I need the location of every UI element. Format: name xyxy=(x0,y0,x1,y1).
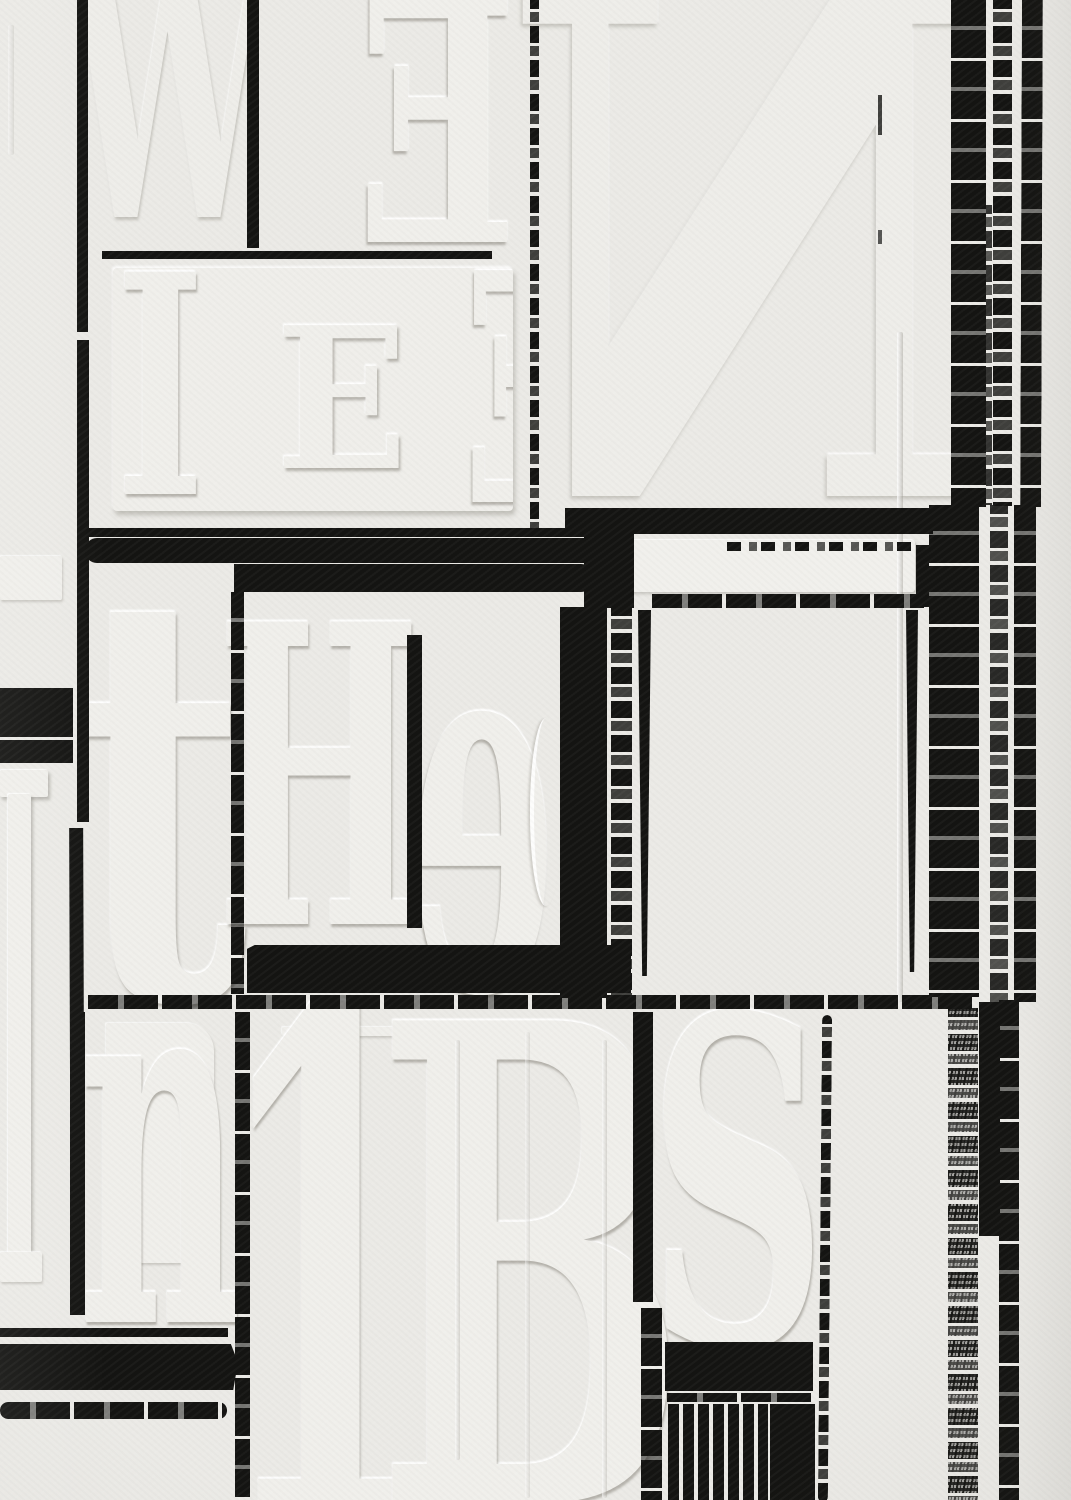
ink-bar-bottom-thick xyxy=(0,1344,238,1390)
ink-stripe-charcoal xyxy=(948,1008,978,1500)
ink-rule-junction-block xyxy=(584,532,634,608)
ink-rule-left-bar-b xyxy=(0,740,73,763)
ink-rule-vertical-bottom-mid xyxy=(235,1012,250,1498)
ink-rule-comb-rail xyxy=(667,1393,813,1402)
ink-rule-bottom-thin xyxy=(0,1328,228,1337)
ink-rule-right-column-rough xyxy=(993,0,1012,506)
ink-rule-vertical-mid xyxy=(231,592,244,994)
ink-rule-right-rough-mid xyxy=(990,505,1008,1002)
ink-rule-vertical-s-left-a xyxy=(633,1012,653,1302)
embossed-letter-s: S xyxy=(666,1014,808,1358)
embossed-partial-letter-stem xyxy=(8,794,31,1262)
emboss-ridge xyxy=(525,1032,530,1498)
ink-rule-horizontal-top xyxy=(102,251,492,259)
ink-rule-vertical-left-b xyxy=(77,340,89,822)
ink-rule-window-right xyxy=(929,505,979,997)
letterpress-print-photo: W E N I E E t H e n 1 B S xyxy=(0,0,1071,1500)
ink-fleck xyxy=(878,95,882,135)
emboss-ridge xyxy=(8,25,14,155)
ink-rule-bottom-rough xyxy=(0,1402,227,1419)
ink-rule-horizontal-mid-thick-b xyxy=(234,564,593,592)
ink-rule-window-left xyxy=(560,607,607,998)
ink-rule-right-outer-bottom xyxy=(999,1000,1019,1500)
ink-rule-horizontal-mid-thin xyxy=(85,528,585,537)
ink-rule-vertical-top xyxy=(247,0,259,248)
ink-comb-teeth xyxy=(668,1404,768,1500)
ink-rule-window-shelf xyxy=(652,594,924,608)
embossed-letter-n-large-mirrored: N xyxy=(542,0,944,510)
embossed-band-left xyxy=(0,556,62,600)
ink-rule-window-dashes xyxy=(727,542,918,551)
ink-rule-vertical-center-broken xyxy=(530,0,539,534)
ink-rule-right-thin xyxy=(986,205,992,505)
ink-fleck xyxy=(878,230,882,244)
ink-rule-vertical-bottom-left xyxy=(70,1012,85,1315)
embossed-letter-b: B xyxy=(398,1026,666,1500)
ink-block-bottom xyxy=(665,1342,813,1391)
ink-rule-left-bar-a xyxy=(0,688,73,737)
ink-rule-horizontal-mid-thick-a xyxy=(85,538,584,563)
ink-rule-window-top xyxy=(565,508,933,534)
embossed-partial-letter-bar xyxy=(0,770,48,797)
ink-rule-taper-right xyxy=(906,610,918,972)
embossed-letter-e-small: E xyxy=(278,326,406,474)
embossed-letter-e-partial-mirrored: E xyxy=(425,272,513,508)
emboss-ridge xyxy=(897,332,903,1002)
ink-rule-vertical-between-h-e xyxy=(407,635,422,928)
emboss-arc xyxy=(530,718,562,906)
emboss-ridge xyxy=(602,1040,607,1498)
embossed-letter-w: W xyxy=(75,0,260,240)
embossed-letter-e-mirrored: E xyxy=(362,0,512,250)
ink-rule-right-column-outer xyxy=(1020,0,1043,507)
ink-rule-horizontal-long xyxy=(88,995,973,1009)
ink-rule-window-left-edge xyxy=(611,607,632,998)
ink-rule-vertical-left-a xyxy=(77,0,88,332)
ink-rule-right-solid-bottom xyxy=(979,1002,1000,1236)
embossed-letter-n-lowercase: n xyxy=(98,1012,223,1274)
ink-rule-right-column-solid xyxy=(951,0,986,507)
ink-block-comb-end xyxy=(770,1404,815,1500)
ink-bar-thick-mid xyxy=(247,945,631,993)
embossed-partial-letter-foot xyxy=(0,1252,42,1282)
ink-rule-right-outer-mid xyxy=(1014,505,1036,1002)
ink-rule-vertical-s-left-b xyxy=(641,1308,662,1500)
emboss-ridge xyxy=(455,1040,460,1460)
